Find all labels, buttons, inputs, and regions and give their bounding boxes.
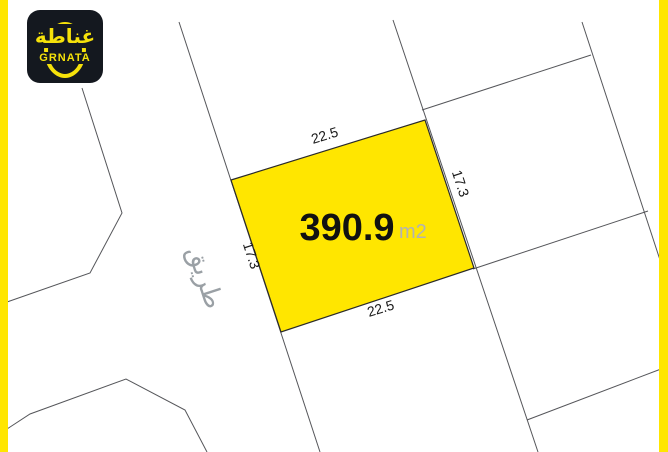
parcel-divider-2: [473, 211, 648, 269]
logo-arabic-text: غناطة: [34, 24, 96, 48]
frame-left: [0, 0, 8, 452]
grnata-logo: غناطة GRNATA: [27, 10, 103, 83]
plot-map-image: 22.5 22.5 17.3 17.3 390.9 m2 طريق غناطة …: [0, 0, 668, 452]
road-edge-lower: [7, 379, 207, 452]
parcel-divider-3: [527, 369, 661, 420]
dim-label-top: 22.5: [309, 124, 340, 147]
frame-right: [659, 0, 668, 452]
plot-area-value: 390.9: [299, 207, 394, 249]
boundary-line-far-right: [582, 22, 661, 263]
road-edge-upper: [7, 88, 122, 302]
road-label: طريق: [180, 242, 228, 312]
parcel-divider-1: [422, 55, 591, 110]
logo-latin-text: GRNATA: [36, 52, 94, 64]
dim-label-right: 17.3: [449, 168, 473, 199]
plot-area-unit: m2: [399, 221, 427, 243]
